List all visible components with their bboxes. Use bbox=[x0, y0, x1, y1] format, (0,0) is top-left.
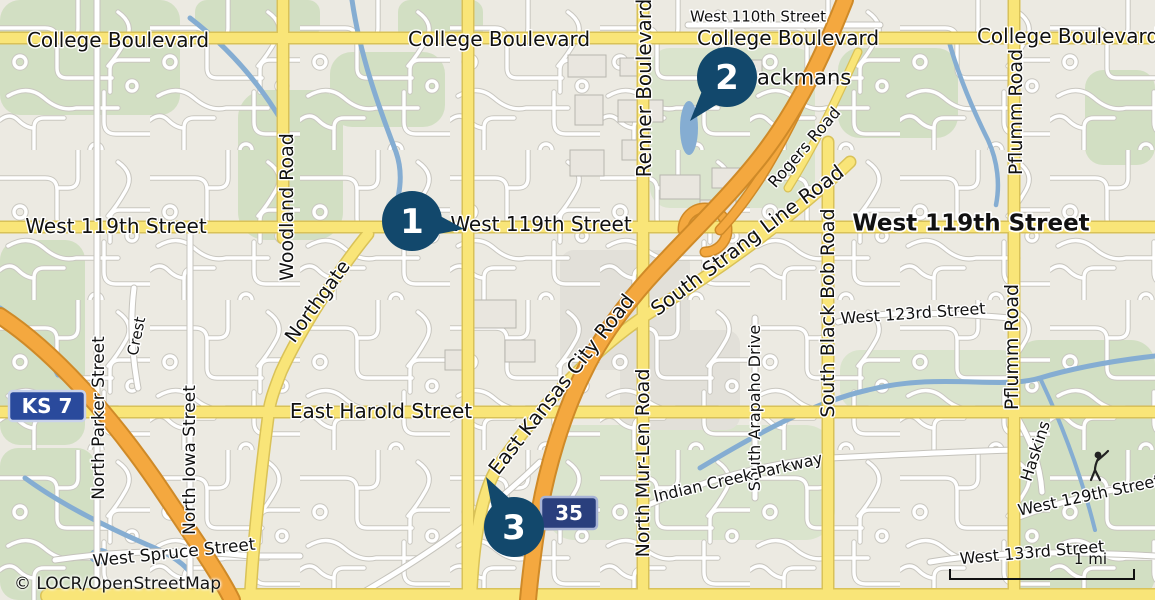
i35-shield: 35 bbox=[541, 497, 597, 529]
map-marker-1-number: 1 bbox=[400, 202, 424, 242]
label-north-mur-len-road: North Mur-Len Road bbox=[632, 369, 654, 558]
scale-line bbox=[949, 569, 1135, 580]
label-south-black-bob-road: South Black Bob Road bbox=[817, 208, 839, 417]
map-marker-3-number: 3 bbox=[502, 508, 526, 548]
i35-shield-label: 35 bbox=[555, 501, 583, 525]
label-college-blvd-1: College Boulevard bbox=[27, 28, 209, 52]
label-north-iowa-street: North Iowa Street bbox=[180, 385, 200, 535]
ks7-shield: KS 7 bbox=[9, 391, 85, 421]
label-east-harold-street: East Harold Street bbox=[290, 399, 472, 423]
map-attribution: © LOCR/OpenStreetMap bbox=[14, 574, 221, 594]
label-renner-boulevard: Renner Boulevard bbox=[632, 0, 656, 177]
label-pflumm-road-1: Pflumm Road bbox=[1005, 49, 1027, 175]
ks7-shield-label: KS 7 bbox=[22, 394, 73, 418]
label-west-119th-street-3: West 119th Street bbox=[852, 210, 1089, 236]
label-west-119th-street-2: West 119th Street bbox=[450, 212, 632, 236]
label-north-parker-street: North Parker Street bbox=[89, 336, 109, 500]
scale-bar: 1 mi bbox=[949, 550, 1135, 580]
map-canvas[interactable]: College BoulevardCollege BoulevardColleg… bbox=[0, 0, 1155, 600]
label-college-blvd-3: College Boulevard bbox=[697, 26, 879, 50]
label-college-blvd-4: College Boulevard bbox=[977, 24, 1155, 48]
label-west-119th-street-1: West 119th Street bbox=[25, 214, 207, 238]
scale-label: 1 mi bbox=[949, 550, 1135, 568]
label-college-blvd-2: College Boulevard bbox=[408, 27, 590, 51]
label-woodland-road: Woodland Road bbox=[276, 133, 298, 281]
label-west-110th-street: West 110th Street bbox=[690, 7, 826, 25]
map-marker-2-number: 2 bbox=[715, 58, 739, 98]
label-pflumm-road-2: Pflumm Road bbox=[1001, 284, 1023, 410]
